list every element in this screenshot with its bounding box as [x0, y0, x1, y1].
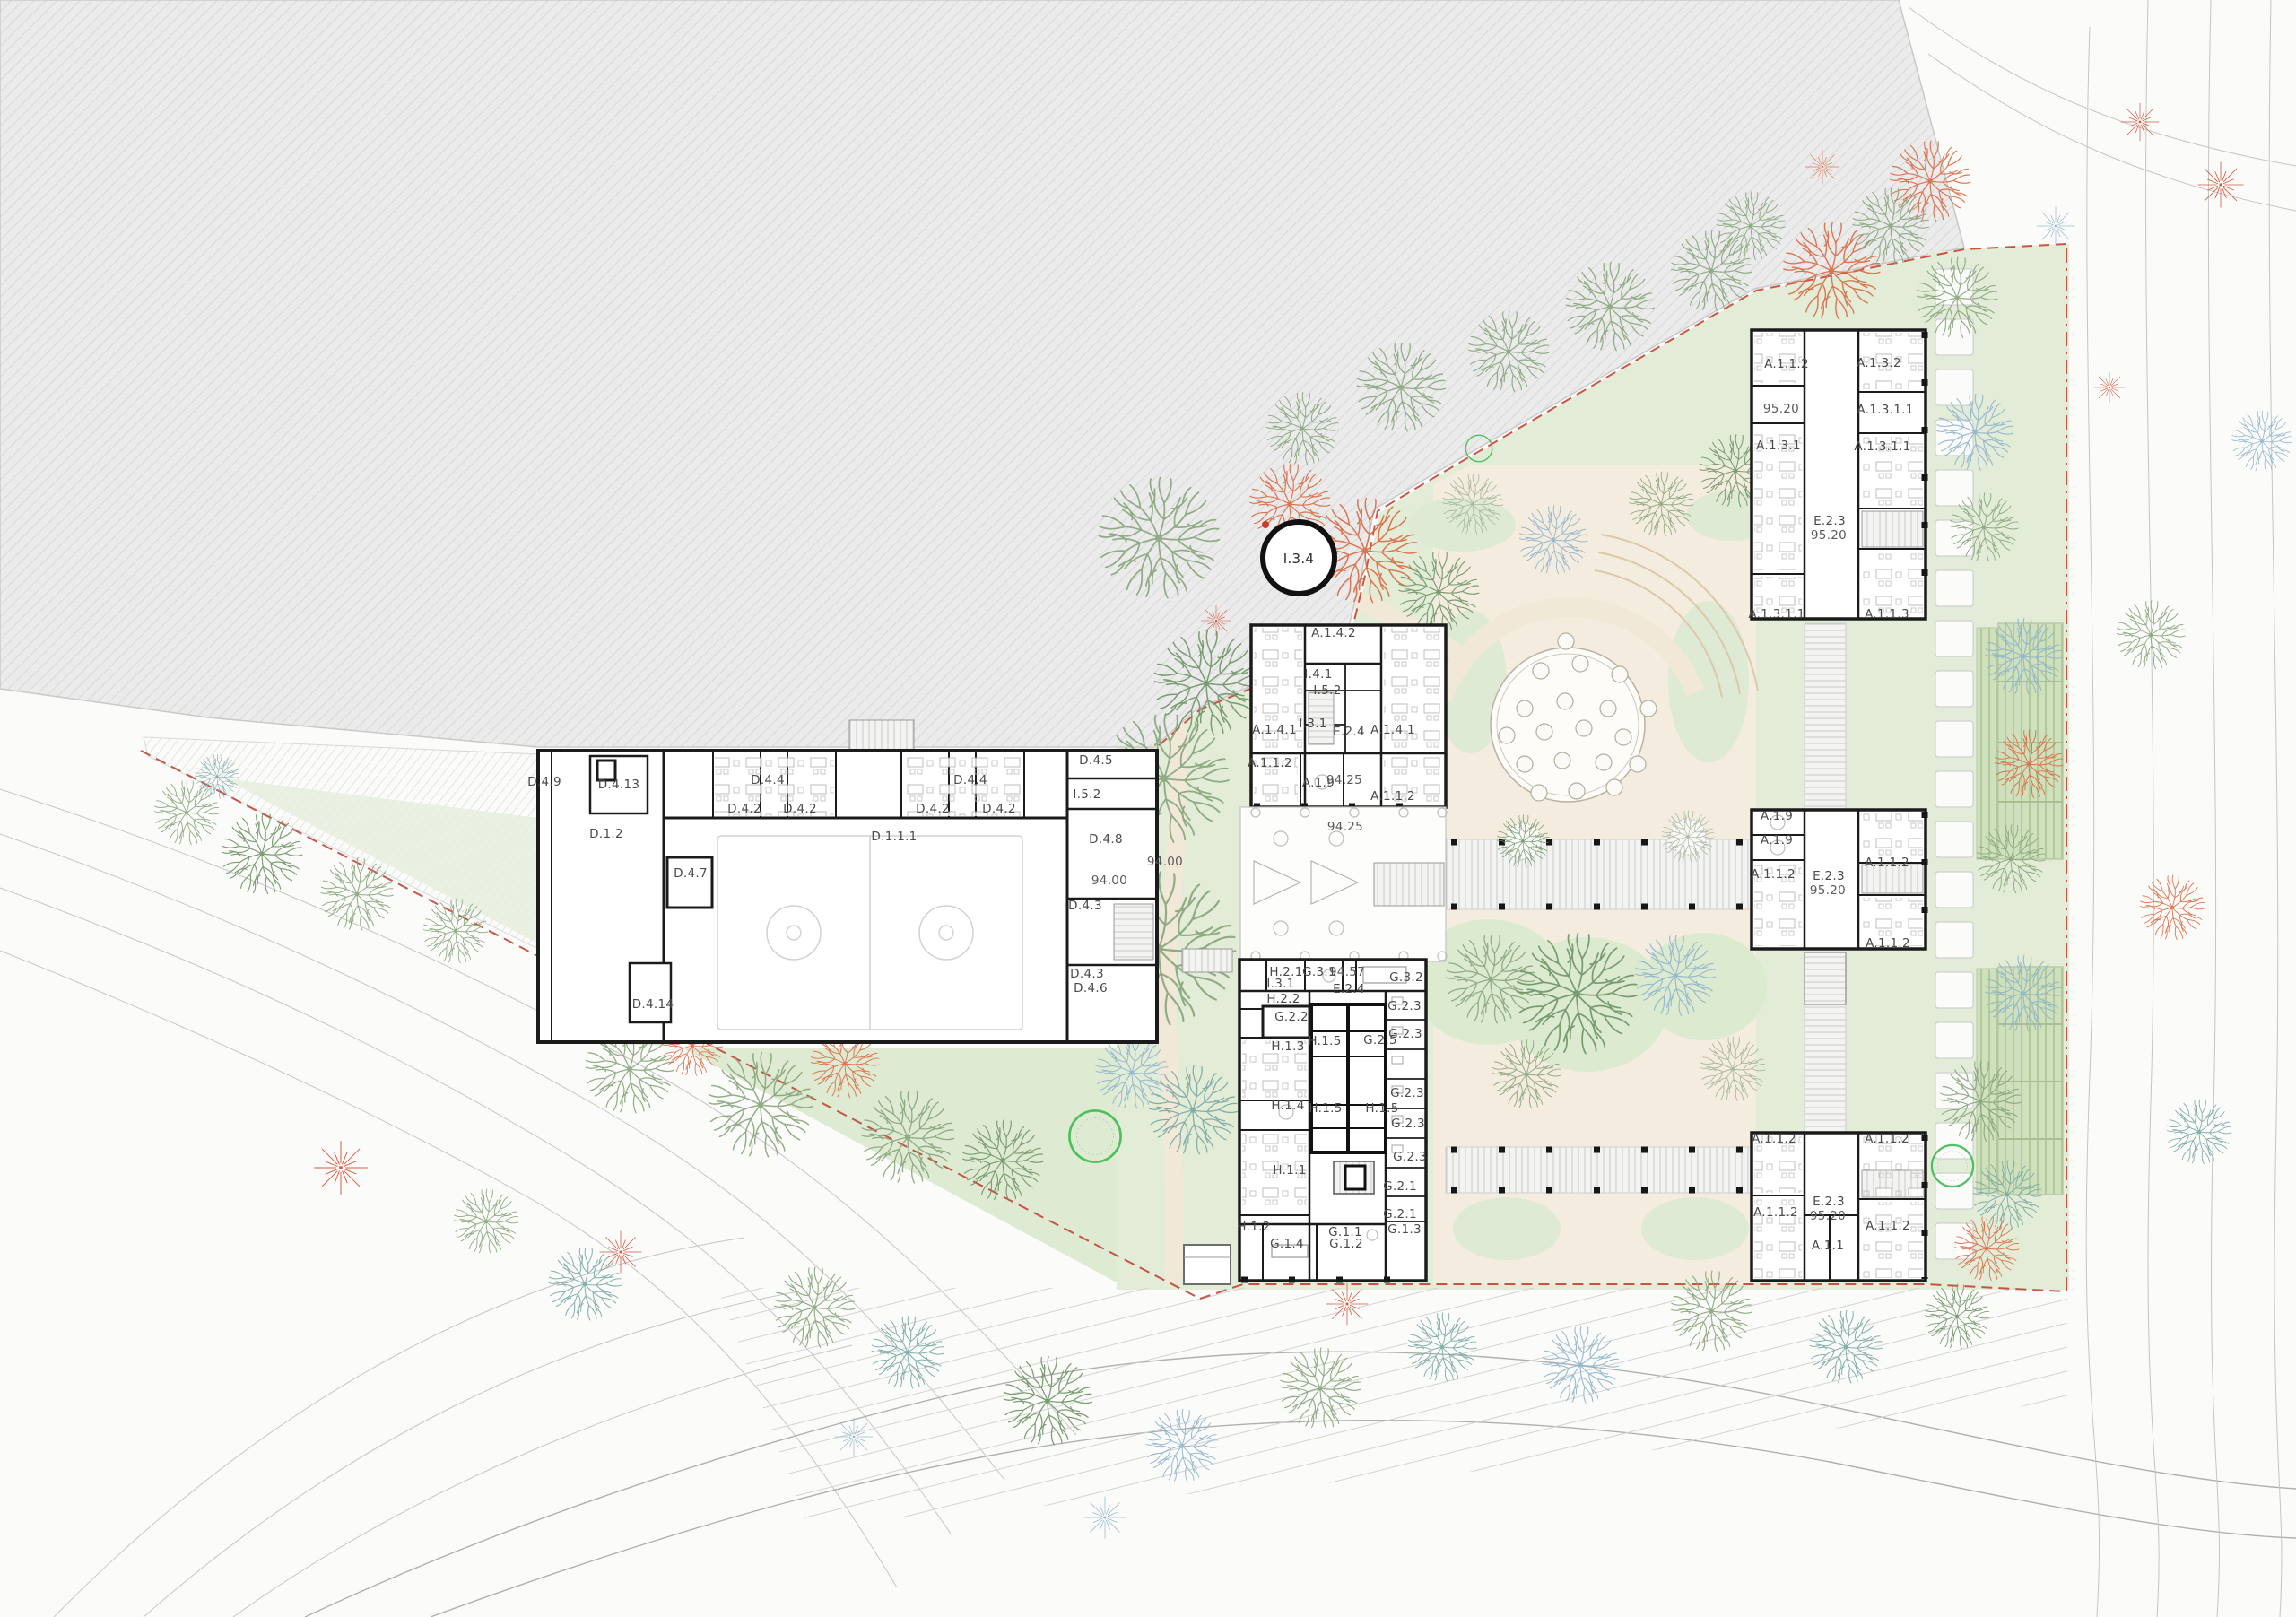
room-label: A.1.1.2 — [1865, 1132, 1909, 1146]
level-label: 94.25 — [1326, 773, 1362, 787]
room-label: G.1.4 — [1270, 1237, 1304, 1251]
room-label: A.1.1.2 — [1865, 856, 1909, 870]
room-label: D.4.4 — [953, 773, 987, 787]
room-label: H.1.1 — [1273, 1163, 1306, 1178]
level-label: 94.25 — [1327, 820, 1363, 834]
garden-shed — [1184, 1245, 1231, 1284]
room-label: A.1.9 — [1761, 833, 1793, 848]
room-label: D.4.8 — [1089, 832, 1123, 847]
room-label: D.4.9 — [527, 775, 561, 789]
room-label: D.4.3 — [1070, 967, 1104, 981]
room-label: G.1.3 — [1387, 1222, 1422, 1237]
room-label: G.2.3 — [1393, 1150, 1427, 1164]
room-label: A.1.3.1.1 — [1748, 607, 1805, 622]
room-label: D.4.5 — [1079, 753, 1113, 768]
level-label: 95.20 — [1763, 402, 1799, 416]
room-label: D.1.1.1 — [871, 830, 917, 844]
room-label: D.1.2 — [589, 827, 623, 841]
room-label: A.1.3.1 — [1756, 439, 1801, 453]
room-label: H.1.4 — [1271, 1099, 1304, 1113]
room-label: A.1.3.2 — [1857, 356, 1901, 370]
room-label: E.2.4 — [1333, 725, 1365, 739]
room-label: A.1.4.1 — [1370, 723, 1415, 737]
room-label: D.4.2 — [982, 802, 1016, 816]
room-label: G.2.3 — [1390, 1086, 1424, 1100]
tree-circle-label: I.3.4 — [1283, 551, 1315, 567]
room-label: E.2.3 — [1813, 514, 1846, 528]
room-label: H.2.2 — [1266, 992, 1300, 1006]
room-label: A.1.1 — [1812, 1239, 1844, 1253]
room-label: D.4.4 — [751, 773, 785, 787]
room-label: G.2.1 — [1383, 1179, 1417, 1194]
room-label: A.1.1.2 — [1751, 867, 1796, 882]
room-label: D.4.7 — [674, 866, 708, 881]
room-label: H.1.5 — [1365, 1101, 1398, 1116]
room-label: A.1.1.2 — [1865, 936, 1910, 951]
room-label: D.4.13 — [598, 778, 640, 792]
room-label: A.1.9 — [1761, 809, 1793, 823]
room-label: A.1.1.2 — [1370, 789, 1415, 804]
room-label: G.2.2 — [1274, 1010, 1309, 1024]
room-label: H.1.2 — [1237, 1220, 1270, 1234]
room-label: D.4.6 — [1074, 981, 1108, 995]
room-label: E.2.4 — [1333, 982, 1365, 996]
room-label: G.2.3 — [1391, 1117, 1425, 1131]
room-label: G.3.2 — [1389, 970, 1423, 985]
room-label: A.1.1.2 — [1865, 1219, 1910, 1233]
room-label: A.1.1.2 — [1248, 756, 1292, 770]
room-label: A.1.1.2 — [1752, 1132, 1796, 1146]
room-label: A.1.1.2 — [1753, 1205, 1798, 1220]
room-label: G.2.3 — [1387, 999, 1422, 1013]
room-label: D.4.14 — [632, 997, 674, 1012]
room-label: I.3.1 — [1266, 977, 1294, 991]
pavilion-north — [1752, 330, 1926, 619]
room-label: A.1.3.1.1 — [1854, 439, 1910, 454]
level-label: 95.20 — [1811, 528, 1847, 543]
site-plan: D.4.9 D.4.13 D.1.2 D.4.2 D.4.4 D.4.2 D.4… — [0, 0, 2296, 1617]
room-label: D.4.2 — [727, 802, 761, 816]
room-label: A.1.4.1 — [1252, 723, 1297, 737]
room-label: A.1.1.2 — [1764, 357, 1809, 371]
room-label: G.1.2 — [1329, 1237, 1363, 1251]
room-label: I.5.2 — [1313, 683, 1341, 698]
room-label: H.1.5 — [1308, 1034, 1341, 1048]
room-label: D.4.2 — [783, 802, 817, 816]
room-label: E.2.3 — [1813, 1195, 1845, 1209]
room-label: E.2.3 — [1813, 869, 1845, 883]
room-label: I.3.1 — [1299, 717, 1326, 731]
room-label: G.2.1 — [1383, 1207, 1417, 1221]
site-plan-svg: D.4.9 D.4.13 D.1.2 D.4.2 D.4.4 D.4.2 D.4… — [0, 0, 2296, 1617]
room-label: G.2.5 — [1363, 1033, 1397, 1048]
room-label: D.4.2 — [916, 802, 950, 816]
room-label: D.4.3 — [1068, 899, 1102, 913]
room-label: I.4.1 — [1304, 667, 1332, 682]
level-label: 94.00 — [1147, 855, 1183, 869]
level-label: 95.20 — [1810, 883, 1846, 898]
room-label: A.1.3.1.1 — [1857, 403, 1913, 417]
room-label: A.1.4.2 — [1311, 626, 1356, 640]
level-label: 94.57 — [1329, 965, 1365, 979]
gym-building — [538, 720, 1157, 1042]
room-label: H.1.3 — [1271, 1039, 1304, 1054]
level-label: 94.00 — [1091, 874, 1127, 888]
room-label: H.1.5 — [1309, 1101, 1342, 1116]
room-label: A.1.1.3 — [1865, 607, 1909, 622]
planting-strip — [1928, 251, 1998, 1284]
level-label: 95.20 — [1810, 1209, 1846, 1223]
room-label: I.5.2 — [1073, 787, 1100, 802]
